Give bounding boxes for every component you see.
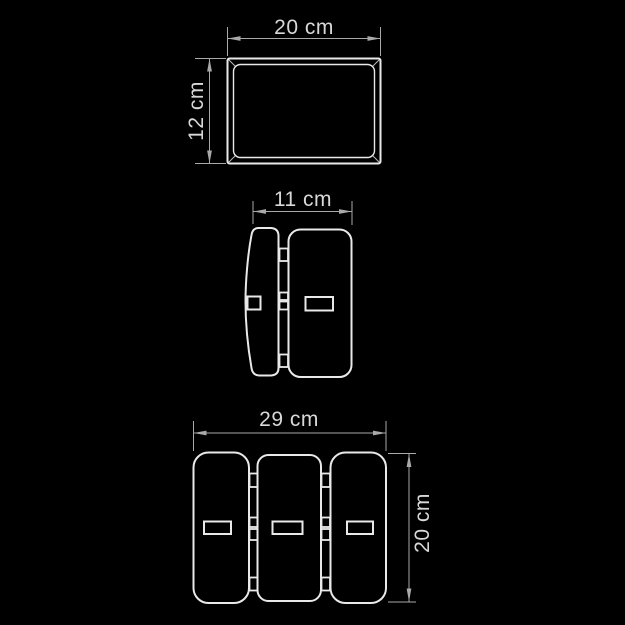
- front-view: 29 cm 20 cm: [194, 408, 435, 603]
- front-view-height-dimension: 20 cm: [388, 454, 434, 603]
- connector-tab: [322, 578, 331, 591]
- connector-tab: [280, 355, 289, 368]
- technical-drawing-page: 20 cm 12 cm: [0, 0, 625, 625]
- side-view-body: [246, 228, 352, 377]
- corner-bevel: [372, 155, 380, 163]
- side-view: 11 cm: [246, 188, 353, 377]
- arrowhead-right-icon: [373, 431, 386, 436]
- top-view-width-dimension: 20 cm: [228, 16, 381, 56]
- corner-bevel: [372, 60, 380, 68]
- arrowhead-left-icon: [228, 36, 241, 41]
- segment-slot-right: [347, 522, 373, 535]
- corner-bevel: [229, 155, 237, 163]
- arrowhead-up-icon: [207, 59, 212, 72]
- connector-tab: [250, 529, 258, 540]
- arrowhead-left-icon: [253, 209, 266, 214]
- top-view: 20 cm 12 cm: [185, 16, 381, 164]
- arrowhead-down-icon: [407, 589, 412, 602]
- connector-tab: [280, 293, 289, 301]
- top-depth-label: 12 cm: [185, 81, 208, 141]
- front-view-width-dimension: 29 cm: [194, 408, 387, 451]
- top-view-depth-dimension: 12 cm: [185, 59, 226, 164]
- connector-tab: [322, 529, 331, 540]
- connector-tab: [250, 578, 258, 591]
- front-view-body: [194, 453, 387, 604]
- segment-slot-middle: [273, 522, 303, 535]
- front-height-label: 20 cm: [411, 493, 434, 553]
- side-width-label: 11 cm: [274, 188, 332, 211]
- corner-bevel: [229, 60, 237, 68]
- arrowhead-right-icon: [368, 36, 381, 41]
- connector-tab: [280, 249, 289, 262]
- diffuser-slot: [248, 297, 261, 310]
- connector-tab: [322, 474, 331, 488]
- shade-inner-frame: [234, 65, 375, 158]
- arrowhead-down-icon: [207, 151, 212, 164]
- connector-tab: [280, 302, 289, 310]
- connector-tab: [250, 474, 258, 488]
- plate-slot: [306, 297, 334, 311]
- arrowhead-up-icon: [407, 454, 412, 467]
- arrowhead-right-icon: [339, 209, 352, 214]
- arrowhead-left-icon: [194, 431, 207, 436]
- shade-outer-frame: [228, 59, 381, 164]
- segment-slot-left: [204, 522, 231, 535]
- top-view-outline: [228, 59, 381, 164]
- connector-tab: [250, 518, 258, 528]
- top-width-label: 20 cm: [274, 16, 334, 39]
- connector-tab: [322, 518, 331, 528]
- side-view-width-dimension: 11 cm: [253, 188, 352, 225]
- dimension-drawing: 20 cm 12 cm: [0, 0, 625, 625]
- front-width-label: 29 cm: [259, 408, 319, 431]
